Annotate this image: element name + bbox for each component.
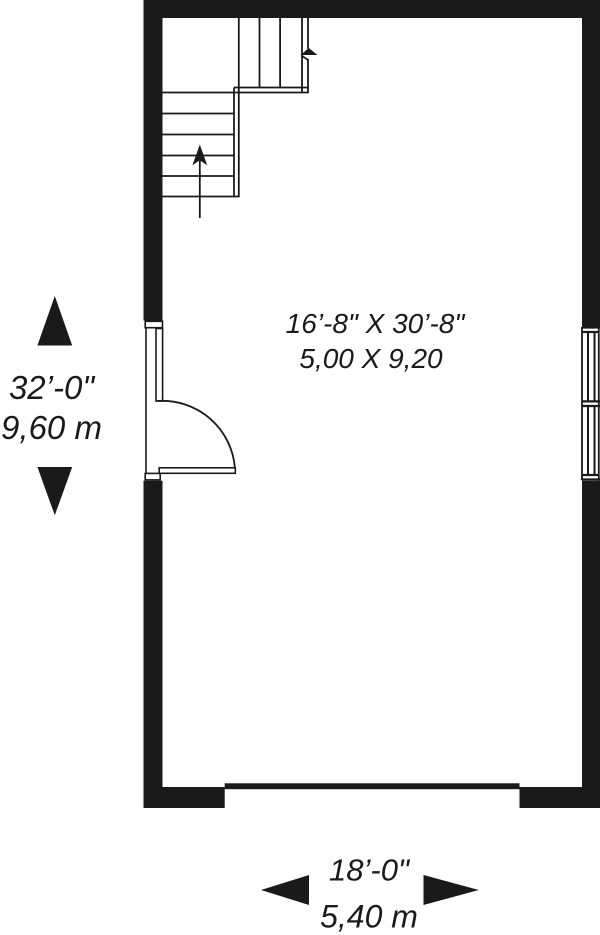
svg-text:5,40 m: 5,40 m <box>320 899 418 935</box>
svg-text:18’-0": 18’-0" <box>329 853 411 888</box>
svg-text:5,00 X 9,20: 5,00 X 9,20 <box>299 343 443 374</box>
svg-text:32’-0": 32’-0" <box>9 369 95 406</box>
svg-text:16’-8" X 30’-8": 16’-8" X 30’-8" <box>286 308 466 339</box>
svg-text:9,60 m: 9,60 m <box>1 409 102 446</box>
